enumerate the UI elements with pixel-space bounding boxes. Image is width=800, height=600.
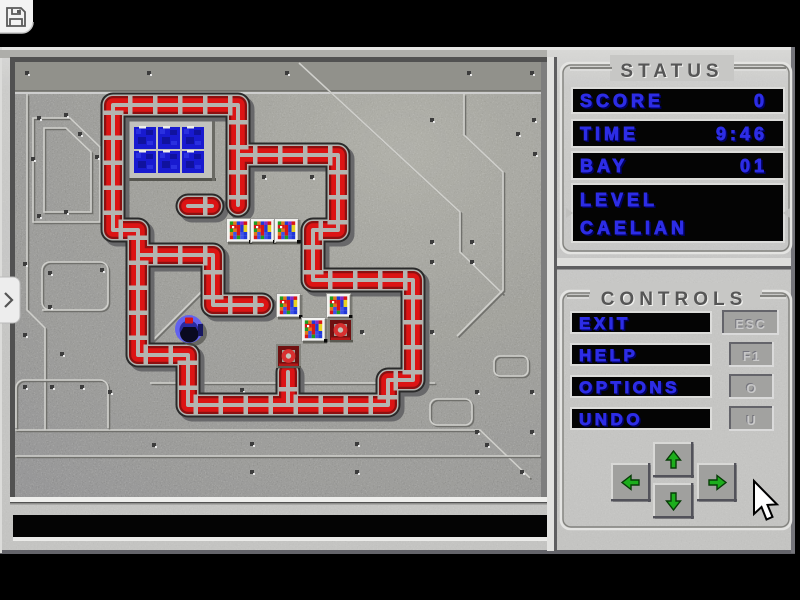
svg-text:UNDO: UNDO <box>579 410 643 429</box>
svg-text:9:46: 9:46 <box>716 124 768 144</box>
svg-text:CONTROLS: CONTROLS <box>601 289 748 310</box>
svg-text:ESC: ESC <box>735 317 766 332</box>
svg-text:U: U <box>747 413 758 428</box>
svg-text:TIME: TIME <box>580 124 639 144</box>
svg-text:LEVEL: LEVEL <box>580 190 658 210</box>
svg-text:0: 0 <box>754 91 768 111</box>
svg-text:01: 01 <box>740 156 768 176</box>
svg-text:BAY: BAY <box>580 156 628 176</box>
svg-text:O: O <box>746 381 758 396</box>
svg-text:HELP: HELP <box>579 346 638 365</box>
svg-text:F1: F1 <box>743 349 761 364</box>
svg-text:SCORE: SCORE <box>580 91 664 111</box>
svg-text:OPTIONS: OPTIONS <box>579 378 680 397</box>
svg-text:STATUS: STATUS <box>620 61 723 82</box>
svg-text:CAELIAN: CAELIAN <box>580 218 688 238</box>
svg-text:EXIT: EXIT <box>579 314 631 333</box>
